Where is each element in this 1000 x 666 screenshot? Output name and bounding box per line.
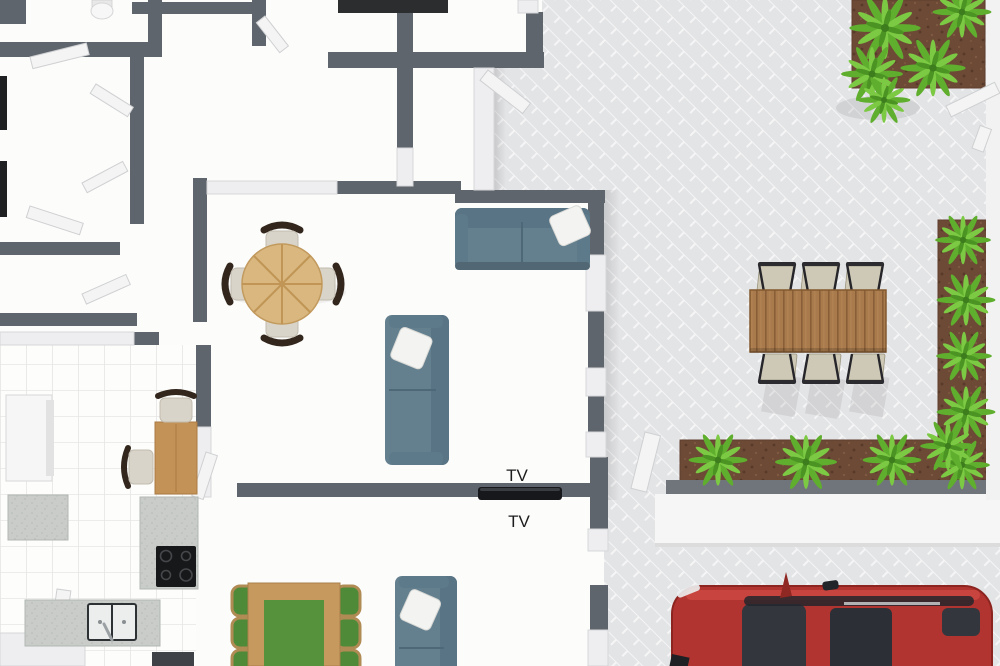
table-green-runner bbox=[264, 600, 324, 666]
wall-light bbox=[207, 181, 337, 194]
wall-light bbox=[397, 148, 413, 186]
outdoor-dining-set bbox=[750, 262, 889, 419]
wall bbox=[328, 52, 544, 68]
wall bbox=[588, 396, 604, 432]
outdoor-chair bbox=[846, 354, 885, 384]
wall bbox=[193, 178, 207, 322]
kitchen-chair-seat bbox=[160, 398, 192, 422]
window bbox=[588, 630, 608, 666]
wall bbox=[526, 12, 543, 68]
floorplan-svg: TV TV bbox=[0, 0, 1000, 666]
floorplan-stage: TV TV bbox=[0, 0, 1000, 666]
wall bbox=[132, 2, 254, 14]
sofa-arm-top bbox=[389, 315, 443, 328]
tv-label-upper: TV bbox=[506, 466, 528, 485]
wall bbox=[0, 242, 120, 255]
outdoor-chair bbox=[757, 262, 796, 292]
fridge bbox=[6, 395, 52, 481]
outdoor-chair bbox=[758, 354, 797, 384]
sink-drain bbox=[98, 620, 102, 624]
outdoor-chair bbox=[845, 262, 884, 292]
roof-rail-chrome bbox=[844, 602, 940, 605]
sideboard-black bbox=[338, 0, 448, 13]
toilet bbox=[91, 3, 113, 19]
bathroom-fixtures bbox=[91, 0, 113, 19]
sofa-top bbox=[455, 204, 592, 270]
walkway-edge bbox=[655, 543, 1000, 547]
round-table-grain bbox=[242, 244, 322, 324]
wall bbox=[0, 0, 26, 24]
wardrobe-black bbox=[0, 76, 7, 130]
wall bbox=[196, 345, 211, 427]
sofa-arm-bottom bbox=[389, 452, 443, 465]
wall bbox=[588, 311, 604, 368]
rear-window bbox=[942, 608, 980, 636]
counter-block bbox=[8, 495, 68, 540]
sofa-bottom bbox=[395, 576, 457, 666]
wardrobe-black bbox=[0, 161, 7, 217]
wall bbox=[455, 190, 605, 203]
green-dining-set bbox=[232, 583, 360, 666]
wall bbox=[130, 52, 144, 224]
fridge-shade bbox=[46, 400, 54, 476]
wall bbox=[0, 313, 137, 326]
outdoor-chair bbox=[801, 262, 840, 292]
sunroof bbox=[830, 608, 892, 666]
wall-light bbox=[518, 0, 538, 13]
sofa-arm-left bbox=[455, 214, 468, 266]
wall bbox=[590, 457, 608, 529]
table-edge-shadow bbox=[750, 348, 886, 353]
sofa-arm-top bbox=[399, 576, 449, 588]
wall bbox=[397, 8, 413, 148]
outdoor-table bbox=[750, 290, 886, 352]
windshield bbox=[742, 604, 806, 666]
perimeter-wall-right bbox=[986, 0, 1000, 500]
kitchen-chair-seat bbox=[129, 450, 153, 484]
wall bbox=[133, 332, 159, 345]
walkway bbox=[655, 494, 1000, 546]
wall-tv-highlight bbox=[480, 488, 560, 491]
outdoor-chair bbox=[802, 354, 841, 384]
window bbox=[586, 432, 606, 457]
sofa-back bbox=[440, 576, 457, 666]
red-car bbox=[665, 572, 992, 666]
sink-drain bbox=[122, 620, 126, 624]
sofa-middle bbox=[385, 315, 449, 465]
wall-light bbox=[0, 332, 134, 345]
window bbox=[586, 368, 606, 396]
window bbox=[588, 529, 608, 551]
tv-label-lower: TV bbox=[508, 512, 530, 531]
wall bbox=[590, 585, 608, 630]
outdoor-bin bbox=[152, 652, 194, 666]
sofa-base bbox=[455, 262, 590, 270]
